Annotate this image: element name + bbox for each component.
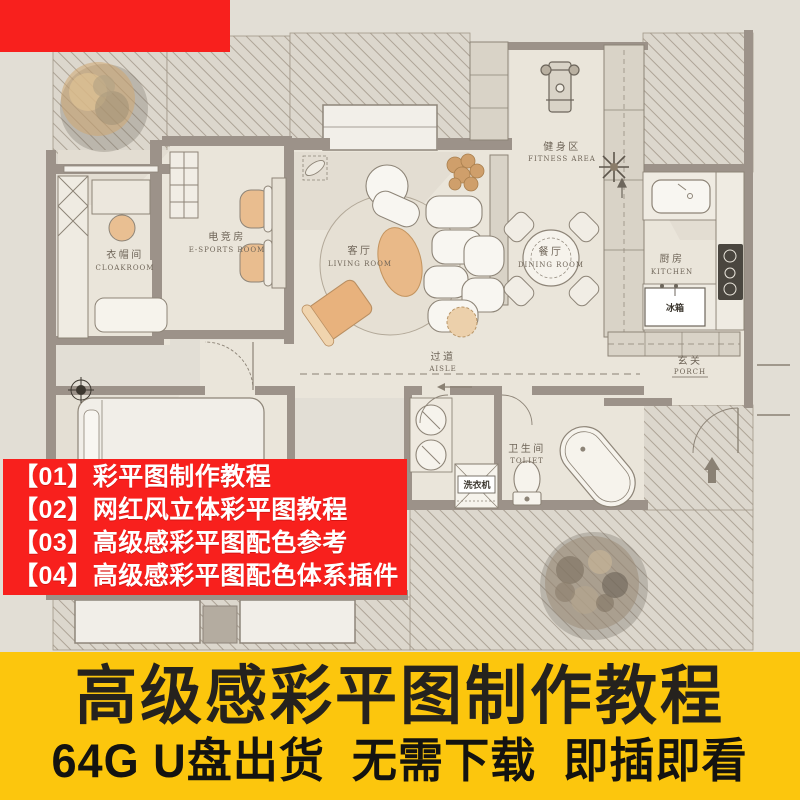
promo-list: 【01】彩平图制作教程 【02】网红风立体彩平图教程 【03】高级感彩平图配色参…: [3, 459, 407, 595]
svg-text:餐厅: 餐厅: [539, 245, 564, 258]
washer-label: 洗衣机: [463, 479, 490, 491]
fridge-icon: 冰箱: [645, 284, 705, 326]
svg-text:玄关: 玄关: [678, 354, 703, 367]
svg-text:CLOAKROOM: CLOAKROOM: [96, 264, 155, 272]
banner-title: 高级感彩平图制作教程: [75, 662, 725, 733]
sink-icon: [652, 180, 710, 213]
svg-text:DINING ROOM: DINING ROOM: [518, 261, 584, 269]
washer-icon: 洗衣机: [455, 464, 498, 508]
product-image: 冰箱 洗衣机: [0, 0, 800, 800]
promo-item-1: 【01】彩平图制作教程: [13, 461, 407, 494]
banner-subtitle: 64G U盘出货 无需下载 即插即看: [52, 733, 748, 789]
promo-item-4: 【04】高级感彩平图配色体系插件: [13, 560, 407, 593]
room-label-toilet: 卫生间 TOLIET: [508, 442, 546, 465]
promo-item-2: 【02】网红风立体彩平图教程: [13, 494, 407, 527]
stove-icon: [718, 244, 743, 300]
stool-icon: [109, 215, 135, 241]
promo-item-3: 【03】高级感彩平图配色参考: [13, 527, 407, 560]
spiky-plant-icon: [599, 152, 629, 182]
svg-text:过道: 过道: [431, 350, 456, 363]
svg-text:TOLIET: TOLIET: [510, 457, 544, 465]
svg-text:LIVING ROOM: LIVING ROOM: [328, 260, 392, 268]
corner-badge: [0, 0, 230, 52]
svg-text:PORCH: PORCH: [674, 368, 706, 376]
toilet-icon: [513, 461, 541, 505]
svg-text:AISLE: AISLE: [428, 365, 456, 373]
svg-text:客厅: 客厅: [348, 244, 373, 257]
svg-text:FITNESS AREA: FITNESS AREA: [528, 155, 596, 163]
room-label-aisle: 过道 AISLE: [428, 350, 456, 373]
bottom-banner: 高级感彩平图制作教程 64G U盘出货 无需下载 即插即看: [0, 652, 800, 800]
dining-table: [523, 230, 579, 286]
gaming-chair-icon: [240, 186, 272, 232]
svg-text:KITCHEN: KITCHEN: [651, 268, 693, 276]
bench-icon: [95, 298, 167, 332]
fridge-label: 冰箱: [666, 302, 684, 314]
cloakroom-window: [64, 166, 158, 172]
ottoman-icon: [447, 307, 477, 337]
svg-text:E-SPORTS ROOM: E-SPORTS ROOM: [189, 246, 266, 254]
svg-text:厨房: 厨房: [660, 252, 685, 265]
tree-icon: [540, 532, 648, 640]
svg-text:卫生间: 卫生间: [508, 442, 546, 455]
svg-text:衣帽间: 衣帽间: [106, 248, 144, 261]
svg-text:电竞房: 电竞房: [208, 230, 246, 243]
svg-text:健身区: 健身区: [543, 140, 581, 153]
